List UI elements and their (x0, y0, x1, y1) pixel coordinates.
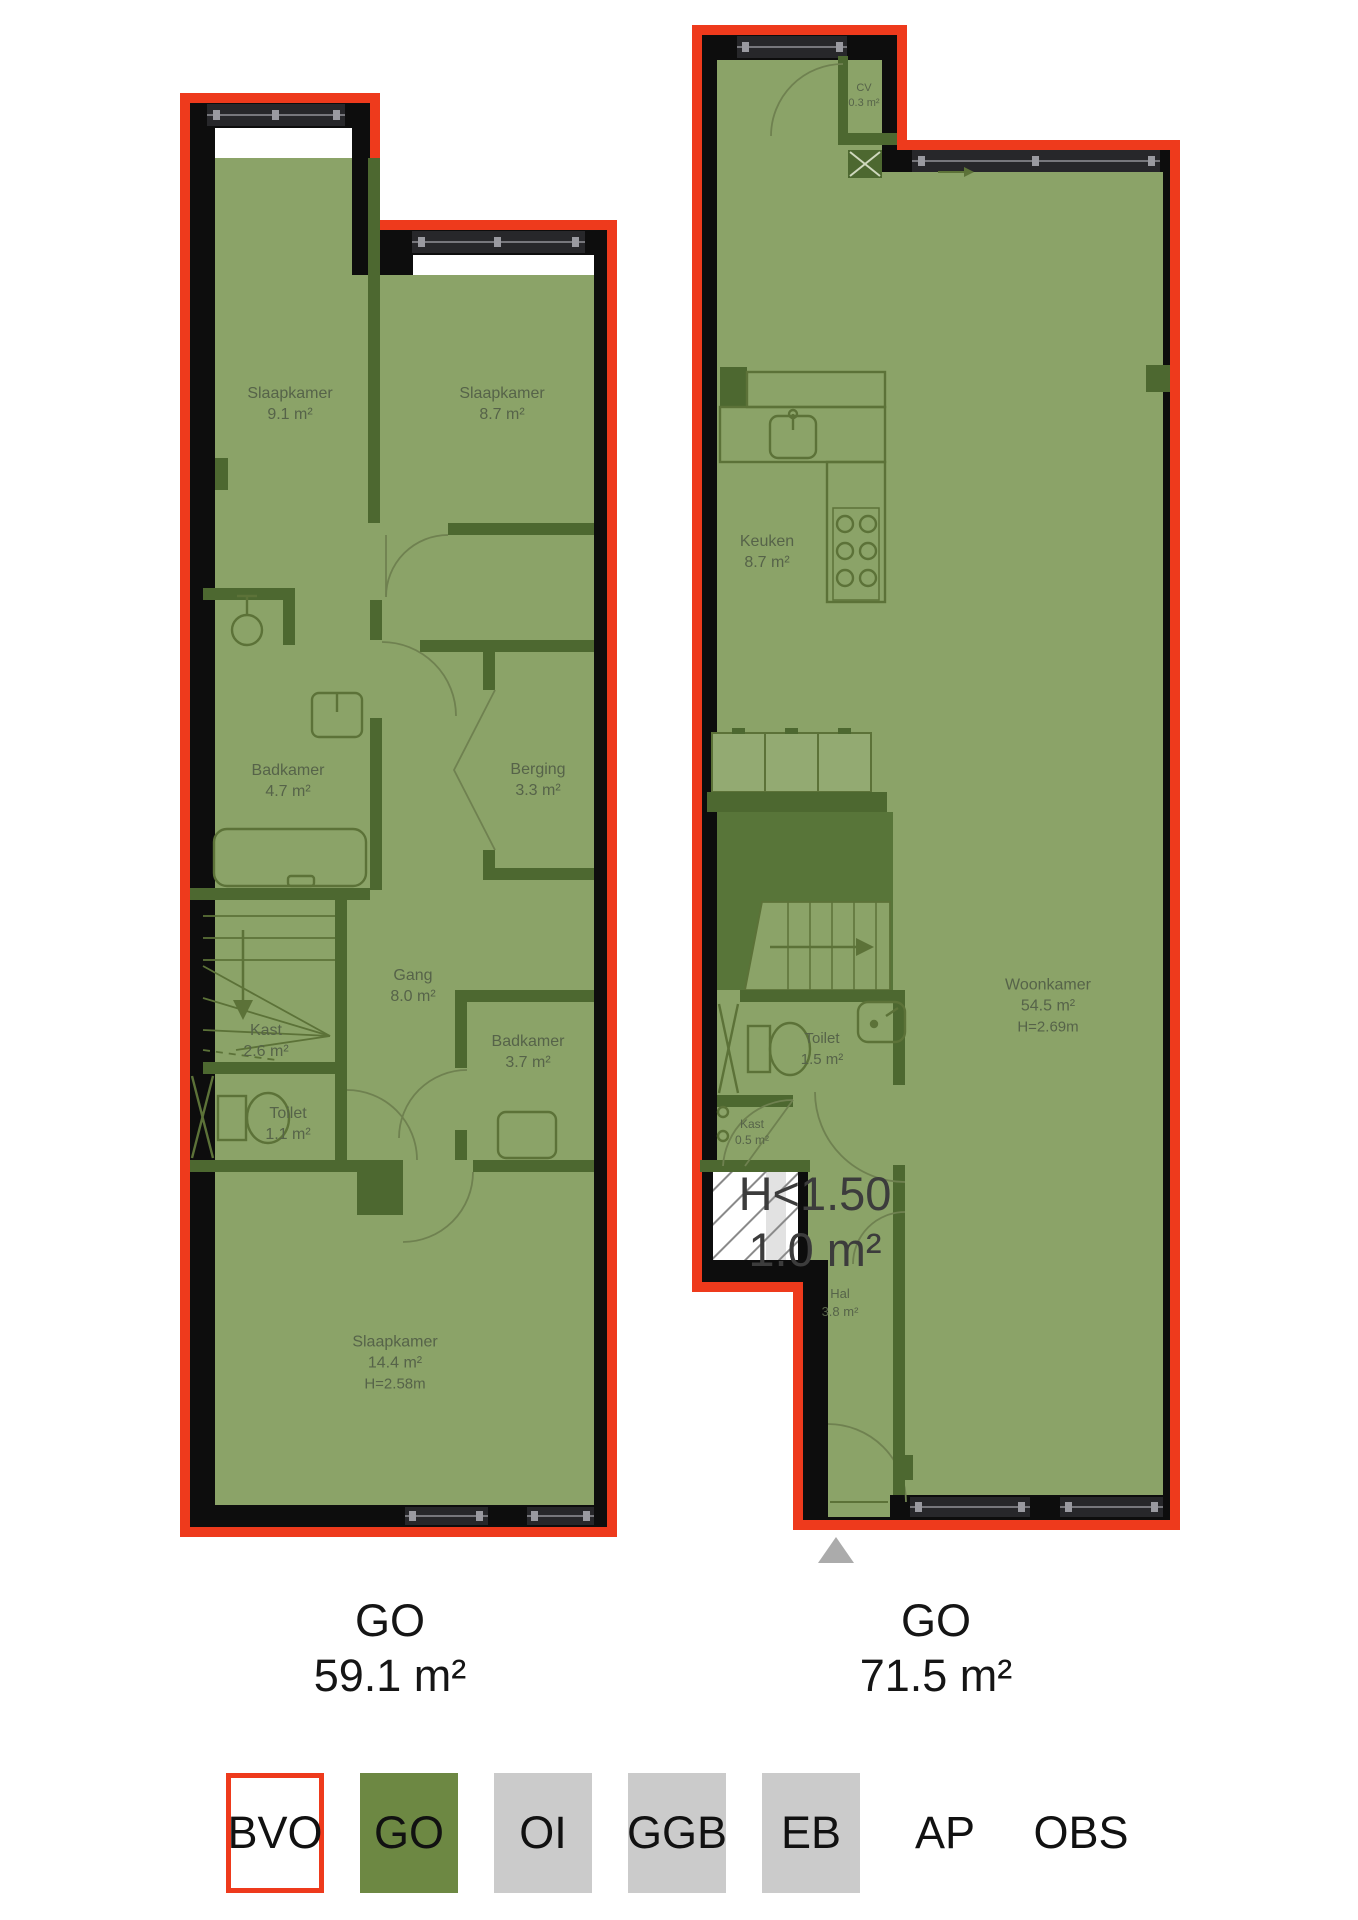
room-name: Badkamer (492, 1031, 565, 1052)
room-area: 1.5 m² (801, 1049, 844, 1070)
window-icon (412, 231, 585, 253)
go-area-left (215, 128, 594, 1505)
stairs-right (717, 812, 893, 990)
room-name: Badkamer (252, 760, 325, 781)
room-label-cv: CV 0.3 m² (848, 81, 879, 111)
total-label: GO (860, 1593, 1013, 1648)
room-area: 9.1 m² (247, 404, 332, 425)
room-area: 4.7 m² (252, 781, 325, 802)
room-label-badkamer-1: Badkamer 4.7 m² (252, 760, 325, 802)
legend-label: OBS (1033, 1807, 1128, 1859)
legend-label: GO (374, 1807, 444, 1859)
low-height-label: H<1.50 1.0 m² (739, 1166, 892, 1278)
room-area: 8.0 m² (390, 986, 435, 1007)
floorplan-page: Slaapkamer 9.1 m² Slaapkamer 8.7 m² Badk… (0, 0, 1358, 1920)
room-name: Woonkamer (1005, 975, 1091, 996)
room-name: Slaapkamer (247, 383, 332, 404)
left-floorplan (180, 93, 617, 1537)
room-area: 2.6 m² (243, 1041, 288, 1062)
room-area: 14.4 m² (352, 1353, 437, 1374)
room-name: Kast (735, 1116, 769, 1132)
measurement-legend: BVO GO OI GGB EB AP OBS (0, 1773, 1358, 1893)
room-name: Kast (243, 1020, 288, 1041)
total-area: 71.5 m² (860, 1648, 1013, 1703)
room-label-berging: Berging 3.3 m² (510, 759, 565, 801)
legend-label: GGB (627, 1807, 727, 1859)
room-name: Berging (510, 759, 565, 780)
total-label: GO (314, 1593, 467, 1648)
window-icon (405, 1507, 488, 1525)
room-area: 0.3 m² (848, 96, 879, 111)
legend-label: EB (781, 1807, 841, 1859)
legend-item-eb: EB (762, 1773, 860, 1893)
right-floorplan (692, 25, 1180, 1530)
room-name: Gang (390, 965, 435, 986)
room-height: H=2.58m (352, 1374, 437, 1395)
total-area: 59.1 m² (314, 1648, 467, 1703)
legend-item-bvo: BVO (226, 1773, 324, 1893)
legend-item-go: GO (360, 1773, 458, 1893)
window-icon (737, 36, 847, 58)
window-icon (910, 1497, 1030, 1517)
room-area: 3.3 m² (510, 780, 565, 801)
low-height-area: 1.0 m² (739, 1222, 892, 1278)
room-label-gang: Gang 8.0 m² (390, 965, 435, 1007)
room-area: 8.7 m² (740, 552, 794, 573)
room-area: 1.1 m² (265, 1124, 310, 1145)
legend-item-obs: OBS (1033, 1773, 1128, 1893)
room-area: 3.8 m² (822, 1303, 859, 1321)
right-plan-total: GO 71.5 m² (860, 1593, 1013, 1703)
room-name: Slaapkamer (459, 383, 544, 404)
window-icon (207, 104, 345, 126)
room-label-toilet-1: Toilet 1.1 m² (265, 1103, 310, 1145)
room-name: Keuken (740, 531, 794, 552)
wardrobe-icons (707, 728, 887, 812)
room-height: H=2.69m (1005, 1017, 1091, 1038)
room-area: 3.7 m² (492, 1052, 565, 1073)
room-label-slaapkamer-2: Slaapkamer 8.7 m² (459, 383, 544, 425)
left-plan-total: GO 59.1 m² (314, 1593, 467, 1703)
room-name: Slaapkamer (352, 1332, 437, 1353)
room-label-badkamer-2: Badkamer 3.7 m² (492, 1031, 565, 1073)
room-label-keuken: Keuken 8.7 m² (740, 531, 794, 573)
room-label-woonkamer: Woonkamer 54.5 m² H=2.69m (1005, 975, 1091, 1038)
room-label-slaapkamer-3: Slaapkamer 14.4 m² H=2.58m (352, 1332, 437, 1395)
room-area: 8.7 m² (459, 404, 544, 425)
room-label-toilet-2: Toilet 1.5 m² (801, 1028, 844, 1070)
legend-label: OI (519, 1807, 567, 1859)
low-height-limit: H<1.50 (739, 1166, 892, 1222)
legend-item-oi: OI (494, 1773, 592, 1893)
room-label-kast-1: Kast 2.6 m² (243, 1020, 288, 1062)
room-area: 0.5 m² (735, 1132, 769, 1148)
room-label-hal: Hal 3.8 m² (822, 1285, 859, 1321)
room-name: Toilet (801, 1028, 844, 1049)
window-icon (1060, 1497, 1163, 1517)
legend-item-ggb: GGB (628, 1773, 726, 1893)
room-area: 54.5 m² (1005, 996, 1091, 1017)
entrance-marker-triangle-icon (818, 1537, 854, 1563)
room-label-slaapkamer-1: Slaapkamer 9.1 m² (247, 383, 332, 425)
room-name: Toilet (265, 1103, 310, 1124)
window-icon (527, 1507, 594, 1525)
legend-label: AP (915, 1807, 975, 1859)
window-icon (912, 150, 1160, 172)
room-name: Hal (822, 1285, 859, 1303)
room-label-kast-2: Kast 0.5 m² (735, 1116, 769, 1148)
floorplan-drawing (0, 0, 1358, 1920)
legend-item-ap: AP (915, 1773, 975, 1893)
room-name: CV (848, 81, 879, 96)
legend-label: BVO (227, 1807, 322, 1859)
